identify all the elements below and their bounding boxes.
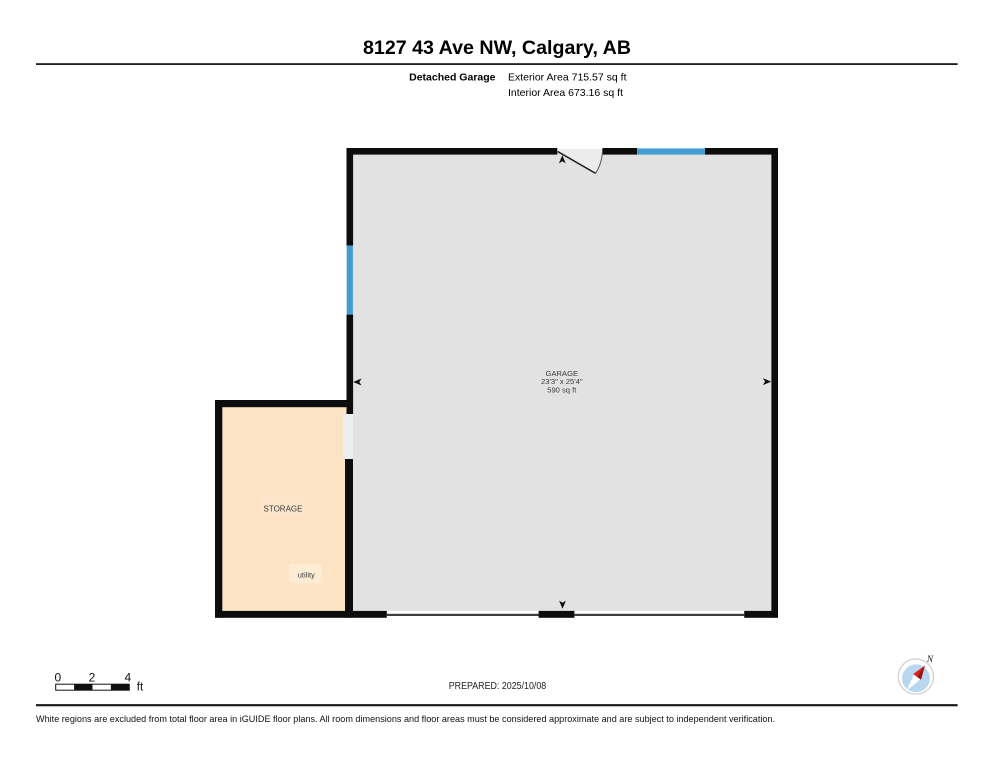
svg-text:8127 43 Ave NW, Calgary, AB: 8127 43 Ave NW, Calgary, AB — [363, 37, 631, 59]
svg-text:4: 4 — [125, 671, 132, 685]
svg-text:590 sq ft: 590 sq ft — [547, 385, 577, 394]
svg-text:N: N — [926, 654, 934, 664]
svg-text:Exterior Area 715.57 sq ft: Exterior Area 715.57 sq ft — [508, 71, 627, 83]
svg-text:2: 2 — [89, 671, 96, 685]
svg-text:PREPARED: 2025/10/08: PREPARED: 2025/10/08 — [449, 681, 547, 692]
svg-text:utility: utility — [298, 570, 315, 579]
svg-text:White regions are excluded fro: White regions are excluded from total fl… — [36, 714, 775, 724]
svg-text:Detached Garage: Detached Garage — [409, 71, 496, 83]
svg-text:ft: ft — [137, 681, 144, 693]
svg-text:STORAGE: STORAGE — [264, 504, 303, 513]
svg-text:0: 0 — [54, 671, 61, 685]
svg-text:Interior Area 673.16 sq ft: Interior Area 673.16 sq ft — [508, 87, 623, 99]
